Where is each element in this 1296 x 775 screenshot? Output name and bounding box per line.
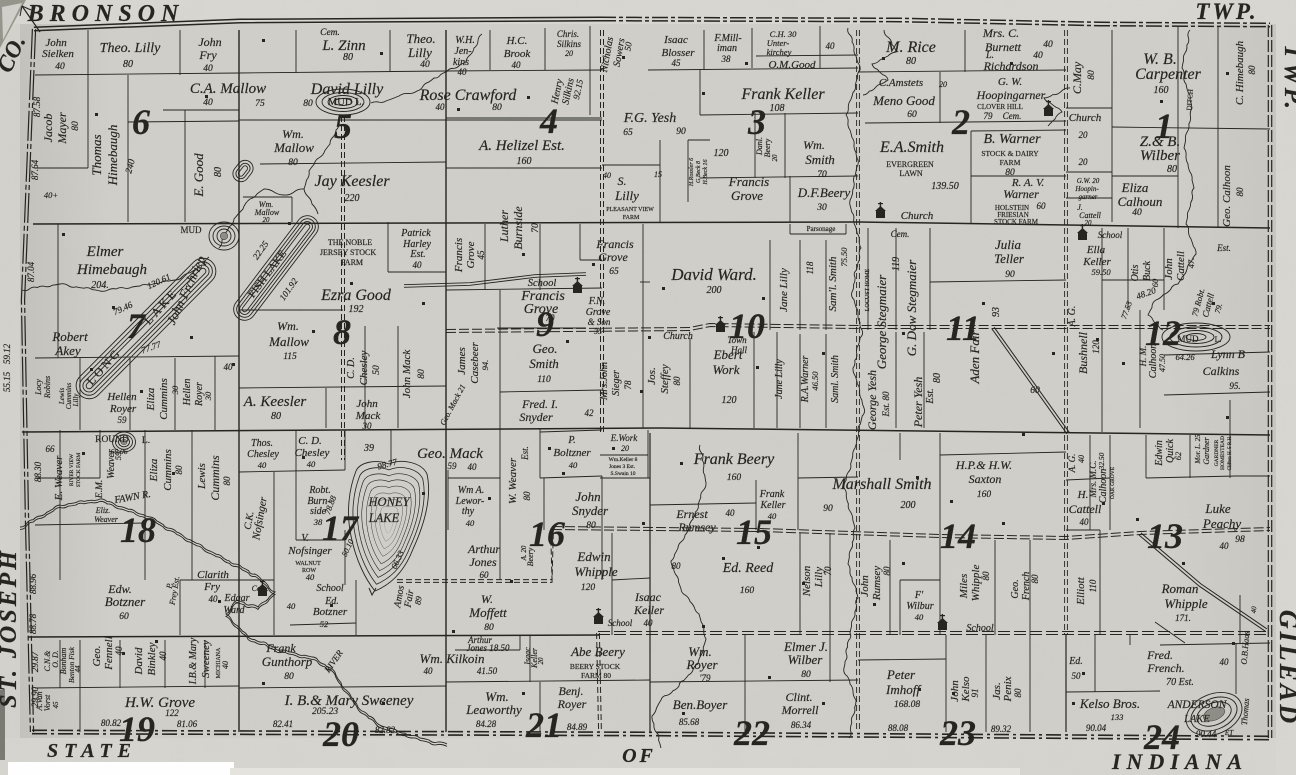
svg-text:Elmer: Elmer: [86, 244, 124, 260]
svg-text:Frank: Frank: [759, 489, 785, 500]
svg-text:W.H.: W.H.: [455, 35, 475, 46]
svg-text:40+: 40+: [44, 190, 58, 200]
svg-text:80.82: 80.82: [101, 718, 122, 728]
svg-text:Fry: Fry: [203, 581, 220, 593]
svg-text:Parsonage: Parsonage: [807, 225, 836, 233]
svg-text:A. Keesler: A. Keesler: [243, 394, 307, 410]
svg-text:40: 40: [466, 518, 475, 528]
svg-text:STOCK FARM: STOCK FARM: [994, 218, 1039, 226]
svg-text:38: 38: [313, 517, 323, 527]
svg-text:Whipple: Whipple: [574, 564, 618, 579]
svg-text:Lilly: Lilly: [614, 188, 639, 203]
svg-text:38: 38: [721, 54, 732, 64]
svg-text:Town: Town: [727, 335, 747, 345]
svg-text:30: 30: [203, 391, 213, 401]
svg-text:Mrs.John: Mrs.John: [599, 362, 610, 401]
svg-text:Julia: Julia: [995, 237, 1021, 252]
svg-text:Botzner: Botzner: [105, 594, 146, 609]
svg-text:80: 80: [271, 411, 281, 422]
svg-text:40: 40: [436, 102, 446, 112]
svg-text:G. W.: G. W.: [998, 76, 1022, 88]
svg-text:30: 30: [362, 421, 373, 431]
svg-text:John: John: [859, 575, 871, 597]
svg-text:40: 40: [413, 260, 423, 270]
svg-text:Ben.Boyer: Ben.Boyer: [673, 697, 728, 712]
svg-text:40: 40: [1132, 208, 1142, 218]
svg-text:V.: V.: [301, 533, 309, 544]
svg-text:7: 7: [127, 306, 147, 346]
svg-text:RIVER VIEW: RIVER VIEW: [69, 453, 75, 486]
svg-text:C.A. Mallow: C.A. Mallow: [190, 81, 266, 97]
svg-text:40: 40: [424, 666, 434, 676]
svg-text:Fry: Fry: [198, 48, 217, 62]
svg-text:F.N.: F.N.: [588, 296, 606, 307]
svg-text:8: 8: [333, 312, 351, 352]
svg-text:E.M.: E.M.: [95, 480, 105, 499]
svg-text:59.50: 59.50: [1091, 267, 1111, 277]
svg-text:80: 80: [932, 373, 943, 383]
svg-text:EVERGREEN: EVERGREEN: [886, 160, 934, 169]
svg-text:M. Rice: M. Rice: [885, 39, 936, 56]
svg-text:Cem.: Cem.: [891, 229, 910, 239]
svg-text:Eliz.: Eliz.: [95, 506, 110, 515]
svg-text:Benj.: Benj.: [559, 684, 584, 698]
svg-text:62: 62: [1173, 451, 1183, 460]
svg-text:Geo.: Geo.: [533, 341, 558, 356]
svg-text:Whipple: Whipple: [1164, 596, 1208, 611]
svg-text:Warner: Warner: [1003, 187, 1039, 201]
svg-text:Sweeney: Sweeney: [200, 640, 212, 678]
svg-text:40: 40: [1220, 541, 1230, 551]
svg-text:80: 80: [303, 99, 313, 109]
svg-text:FARM: FARM: [1000, 158, 1021, 167]
svg-text:Hellen: Hellen: [182, 379, 193, 407]
svg-text:Wilbur: Wilbur: [906, 601, 933, 612]
svg-text:2: 2: [951, 102, 970, 142]
svg-text:Chesley: Chesley: [247, 449, 279, 460]
svg-text:Clint.: Clint.: [785, 690, 812, 704]
svg-text:School: School: [316, 583, 343, 594]
svg-text:20: 20: [1085, 219, 1093, 227]
svg-text:W.: W.: [481, 592, 493, 606]
svg-text:82.82: 82.82: [375, 725, 396, 735]
svg-text:E.A.Smith: E.A.Smith: [879, 139, 944, 156]
svg-text:Geo.: Geo.: [1010, 579, 1021, 598]
svg-text:89.32: 89.32: [991, 724, 1012, 734]
svg-text:44: 44: [74, 665, 82, 673]
svg-text:Frank: Frank: [265, 641, 296, 655]
svg-text:40: 40: [224, 362, 234, 372]
svg-text:Nofsinger: Nofsinger: [287, 545, 332, 557]
svg-text:108: 108: [770, 103, 785, 114]
svg-text:Sam'l. Smith: Sam'l. Smith: [827, 256, 839, 311]
svg-text:80: 80: [672, 376, 682, 386]
svg-text:3: 3: [747, 102, 766, 142]
svg-text:Hellen: Hellen: [106, 391, 137, 403]
svg-text:HONEY: HONEY: [368, 495, 412, 509]
svg-text:STOCK FARM: STOCK FARM: [76, 453, 82, 488]
svg-text:200: 200: [707, 285, 722, 296]
svg-text:Imhoff: Imhoff: [885, 682, 922, 697]
svg-text:Snyder: Snyder: [572, 503, 609, 518]
svg-text:Miles: Miles: [958, 574, 970, 599]
svg-text:Church: Church: [901, 210, 934, 222]
svg-text:120: 120: [1091, 340, 1101, 354]
svg-text:118: 118: [805, 261, 815, 274]
svg-text:Thos.: Thos.: [251, 438, 273, 449]
svg-text:80: 80: [981, 571, 991, 581]
svg-text:Lynn B: Lynn B: [1210, 347, 1246, 361]
svg-text:ROUND: ROUND: [95, 435, 129, 445]
svg-text:Hoopingarner: Hoopingarner: [976, 88, 1046, 102]
svg-text:Patrick: Patrick: [400, 228, 431, 239]
svg-text:98: 98: [1235, 535, 1245, 545]
svg-text:40: 40: [420, 60, 430, 70]
svg-text:40: 40: [221, 661, 230, 669]
svg-text:66: 66: [46, 444, 56, 454]
svg-text:E.Work: E.Work: [610, 433, 638, 443]
svg-text:160: 160: [977, 490, 992, 500]
svg-text:40: 40: [1220, 657, 1230, 667]
svg-text:13: 13: [1147, 516, 1183, 556]
svg-text:60: 60: [1030, 386, 1040, 396]
svg-text:80: 80: [222, 476, 232, 486]
svg-text:Eliza: Eliza: [145, 387, 157, 411]
svg-text:Francis: Francis: [453, 238, 465, 273]
svg-text:80: 80: [71, 121, 81, 131]
svg-text:LAWN: LAWN: [899, 169, 923, 178]
svg-text:20: 20: [322, 714, 359, 754]
svg-text:55.15: 55.15: [2, 371, 12, 392]
svg-text:80: 80: [801, 670, 811, 680]
svg-text:19: 19: [119, 709, 155, 749]
svg-text:John: John: [1163, 258, 1175, 280]
svg-text:20: 20: [565, 49, 573, 58]
svg-text:40: 40: [55, 62, 65, 72]
svg-text:78: 78: [623, 380, 633, 390]
svg-text:80: 80: [906, 56, 916, 67]
svg-text:84.89: 84.89: [567, 722, 588, 732]
svg-text:Arthur: Arthur: [467, 542, 500, 556]
svg-text:80: 80: [1030, 574, 1040, 584]
svg-text:20: 20: [263, 216, 271, 224]
svg-text:Edgar: Edgar: [224, 593, 250, 604]
svg-text:Boltzner: Boltzner: [553, 447, 591, 459]
svg-text:15: 15: [736, 512, 772, 552]
svg-text:Jones 3 Est.: Jones 3 Est.: [609, 464, 636, 470]
svg-text:50: 50: [372, 365, 382, 375]
svg-text:80: 80: [882, 566, 892, 576]
svg-text:Francis: Francis: [728, 174, 769, 189]
svg-text:Benton Fisk: Benton Fisk: [67, 646, 76, 683]
svg-text:80: 80: [1235, 187, 1245, 197]
svg-text:David Ward.: David Ward.: [670, 265, 757, 284]
svg-text:Aden Fair: Aden Fair: [967, 330, 982, 385]
svg-text:TWP.: TWP.: [1195, 0, 1258, 24]
svg-text:93: 93: [991, 307, 1002, 317]
svg-text:Buck: Buck: [1142, 260, 1153, 281]
svg-text:Wm. Kilkoin: Wm. Kilkoin: [420, 651, 485, 666]
svg-text:Royer: Royer: [109, 403, 137, 415]
svg-text:Clarith: Clarith: [197, 569, 229, 581]
svg-text:Carpenter: Carpenter: [1135, 66, 1202, 83]
svg-text:BEERY STOCK: BEERY STOCK: [570, 662, 621, 671]
svg-text:School: School: [528, 278, 557, 289]
svg-text:Ward: Ward: [224, 605, 246, 616]
svg-text:Frank Keller: Frank Keller: [740, 86, 825, 103]
svg-text:59.12: 59.12: [2, 343, 12, 364]
svg-text:Ella: Ella: [1086, 244, 1106, 256]
svg-text:40: 40: [1080, 517, 1090, 527]
svg-text:20: 20: [1079, 157, 1089, 167]
svg-text:James: James: [456, 347, 468, 375]
svg-text:MUD: MUD: [180, 225, 202, 235]
svg-text:Calhoon: Calhoon: [1098, 469, 1109, 503]
svg-text:Cem.: Cem.: [1003, 111, 1022, 121]
svg-text:Richardson: Richardson: [983, 59, 1039, 73]
svg-text:Kelso Bros.: Kelso Bros.: [1079, 696, 1140, 711]
svg-text:Steffey: Steffey: [659, 364, 671, 393]
svg-text:160: 160: [740, 586, 755, 596]
svg-text:Binkley: Binkley: [146, 642, 158, 675]
svg-text:OF: OF: [622, 745, 656, 767]
svg-text:LAKE: LAKE: [1183, 714, 1210, 725]
svg-text:Abe Beery: Abe Beery: [570, 644, 625, 659]
svg-text:220: 220: [345, 193, 360, 204]
svg-text:Church: Church: [1069, 112, 1102, 124]
svg-text:E. Good: E. Good: [191, 153, 206, 198]
svg-text:Eliza: Eliza: [1121, 180, 1149, 195]
svg-text:Marshall Smith: Marshall Smith: [831, 476, 931, 493]
svg-text:60: 60: [480, 570, 490, 580]
svg-text:School: School: [966, 623, 993, 634]
svg-text:WALNUT: WALNUT: [295, 561, 321, 567]
svg-text:45: 45: [52, 701, 60, 709]
svg-text:40: 40: [726, 508, 736, 518]
svg-text:23: 23: [939, 713, 976, 753]
svg-text:Ernest: Ernest: [675, 507, 708, 521]
svg-text:Wilber: Wilber: [788, 652, 824, 667]
svg-text:Mayer: Mayer: [55, 112, 69, 145]
svg-text:22: 22: [733, 713, 770, 753]
svg-text:Gardner: Gardner: [1202, 436, 1211, 464]
svg-text:ET: ET: [1224, 729, 1234, 737]
svg-text:64.26: 64.26: [1175, 352, 1195, 362]
svg-text:BRONSON: BRONSON: [27, 1, 185, 27]
svg-text:60: 60: [119, 612, 129, 622]
svg-text:15: 15: [654, 170, 662, 179]
svg-text:Saxton: Saxton: [969, 472, 1002, 486]
svg-text:kirchey: kirchey: [767, 47, 792, 57]
svg-text:52: 52: [320, 619, 329, 629]
svg-text:Isaac: Isaac: [663, 34, 688, 46]
svg-text:45: 45: [672, 58, 682, 68]
svg-text:Church: Church: [663, 331, 693, 342]
svg-text:Saml. Smith: Saml. Smith: [830, 355, 841, 403]
svg-text:French.: French.: [1146, 661, 1184, 675]
svg-text:Francis: Francis: [595, 237, 634, 251]
svg-text:4: 4: [539, 101, 558, 141]
svg-text:Botzner: Botzner: [313, 606, 348, 618]
svg-text:Whipple: Whipple: [970, 565, 982, 602]
svg-text:Grove: Grove: [731, 188, 763, 203]
svg-text:88.08: 88.08: [888, 723, 909, 733]
svg-text:Wm.: Wm.: [282, 127, 304, 141]
svg-text:120: 120: [581, 583, 596, 593]
svg-text:L.: L.: [1215, 335, 1222, 344]
svg-text:80: 80: [484, 623, 494, 633]
svg-text:Grove: Grove: [598, 250, 628, 264]
svg-text:Mallow: Mallow: [268, 334, 309, 349]
svg-text:Ezra Good: Ezra Good: [320, 287, 392, 304]
svg-text:C. Himebaugh: C. Himebaugh: [1234, 40, 1246, 105]
svg-text:Cummins: Cummins: [158, 378, 170, 420]
svg-text:Cummins: Cummins: [208, 455, 222, 501]
svg-text:A. Helizel Est.: A. Helizel Est.: [478, 138, 565, 154]
svg-text:70: 70: [531, 223, 541, 233]
svg-text:Roman: Roman: [1161, 581, 1199, 596]
svg-text:46.50: 46.50: [810, 371, 820, 391]
svg-text:40: 40: [468, 462, 478, 472]
svg-text:Edwin: Edwin: [576, 549, 610, 564]
svg-text:C. D.: C. D.: [298, 435, 322, 447]
svg-text:90: 90: [823, 504, 833, 514]
svg-text:Jane Lilly: Jane Lilly: [778, 268, 790, 312]
svg-text:Meno Good: Meno Good: [872, 93, 935, 108]
svg-text:H.Rossler 6: H.Rossler 6: [689, 158, 695, 187]
svg-text:Morrell: Morrell: [781, 703, 820, 717]
svg-text:THE NOBLE: THE NOBLE: [328, 238, 372, 247]
svg-text:80: 80: [492, 103, 502, 113]
svg-text:Chesley: Chesley: [295, 447, 330, 459]
svg-text:Moffett: Moffett: [468, 605, 507, 620]
svg-text:30: 30: [170, 385, 180, 395]
svg-text:CLOVER HILL: CLOVER HILL: [977, 103, 1023, 111]
svg-text:Wm.Keller 8: Wm.Keller 8: [609, 457, 638, 463]
svg-text:80: 80: [343, 52, 353, 63]
svg-text:6: 6: [132, 102, 150, 142]
svg-text:C. D.: C. D.: [346, 357, 357, 378]
svg-text:Mrs. C.: Mrs. C.: [982, 26, 1019, 40]
svg-text:40: 40: [287, 601, 296, 611]
svg-text:80: 80: [1013, 688, 1023, 698]
svg-text:Lewis: Lewis: [196, 463, 208, 490]
svg-text:20: 20: [537, 657, 545, 665]
svg-text:Smith: Smith: [529, 356, 559, 371]
svg-text:Est.: Est.: [409, 249, 425, 260]
svg-text:42: 42: [585, 408, 595, 418]
svg-text:Geo. Mack: Geo. Mack: [417, 446, 483, 462]
svg-text:Edwin: Edwin: [1154, 440, 1165, 467]
svg-text:G. Dow Stegmaier: G. Dow Stegmaier: [904, 259, 919, 356]
svg-text:35: 35: [593, 327, 602, 336]
svg-text:Luke: Luke: [1204, 501, 1231, 516]
svg-text:MUD L.: MUD L.: [328, 97, 364, 108]
svg-text:20: 20: [771, 154, 779, 162]
svg-text:Rumsey: Rumsey: [677, 520, 716, 534]
svg-text:14: 14: [940, 516, 976, 556]
svg-text:David: David: [133, 647, 145, 675]
svg-text:PLEASANT VIEW: PLEASANT VIEW: [606, 207, 654, 213]
svg-text:90: 90: [1005, 270, 1015, 280]
svg-text:192: 192: [349, 304, 364, 315]
svg-text:65: 65: [609, 267, 619, 277]
svg-text:70: 70: [823, 566, 833, 576]
svg-text:Leaworthy: Leaworthy: [465, 702, 522, 717]
svg-text:50: 50: [1072, 671, 1082, 681]
svg-text:David Lilly: David Lilly: [310, 81, 384, 98]
svg-text:Cummins: Cummins: [162, 449, 174, 491]
svg-text:Geo. Calhoon: Geo. Calhoon: [1221, 165, 1233, 227]
svg-text:John: John: [356, 398, 378, 410]
svg-text:Est.: Est.: [520, 446, 530, 461]
svg-text:75: 75: [255, 99, 265, 109]
svg-text:HOMESTEAD: HOMESTEAD: [1220, 436, 1226, 470]
svg-text:91: 91: [970, 689, 980, 698]
svg-text:Teller: Teller: [994, 251, 1025, 266]
svg-text:40: 40: [644, 618, 654, 628]
svg-text:70 Est.: 70 Est.: [1166, 677, 1194, 688]
svg-text:Sieger: Sieger: [611, 370, 622, 396]
svg-text:Wm.: Wm.: [803, 138, 825, 152]
svg-text:40: 40: [114, 646, 124, 656]
svg-text:H.W. Grove: H.W. Grove: [124, 695, 195, 711]
svg-text:Ed.: Ed.: [1068, 656, 1083, 667]
svg-text:40: 40: [158, 651, 168, 661]
svg-text:Jones: Jones: [469, 555, 497, 569]
svg-text:168.08: 168.08: [894, 700, 920, 710]
svg-text:F.G. Yesh: F.G. Yesh: [623, 111, 677, 126]
svg-text:18: 18: [120, 510, 156, 550]
svg-text:John Mack: John Mack: [401, 349, 413, 399]
svg-text:Est.: Est.: [925, 388, 936, 404]
svg-text:95.: 95.: [1229, 381, 1240, 391]
svg-text:Cem.: Cem.: [252, 584, 269, 593]
svg-text:5: 5: [334, 106, 352, 146]
svg-text:160: 160: [1154, 85, 1169, 96]
svg-text:80: 80: [1087, 70, 1097, 80]
svg-text:119: 119: [891, 257, 902, 271]
svg-text:80: 80: [1167, 164, 1177, 175]
svg-text:Calhoun: Calhoun: [1118, 194, 1163, 209]
svg-text:FARM: FARM: [341, 258, 363, 267]
svg-text:A. G.: A. G.: [1067, 454, 1077, 474]
svg-text:G.W. 20: G.W. 20: [1077, 177, 1100, 185]
svg-text:40: 40: [209, 594, 219, 604]
svg-text:Chesley: Chesley: [358, 350, 370, 385]
svg-text:82.41: 82.41: [273, 719, 293, 729]
svg-text:40: 40: [603, 171, 611, 180]
svg-text:47.50: 47.50: [1158, 354, 1167, 372]
svg-text:John: John: [198, 35, 221, 49]
svg-text:D.F.Beery: D.F.Beery: [797, 185, 851, 200]
svg-text:Brook: Brook: [504, 48, 532, 60]
svg-text:66.06: 66.06: [111, 447, 128, 456]
svg-text:Jacob: Jacob: [41, 114, 55, 143]
svg-text:I. B.& Mary Sweeney: I. B.& Mary Sweeney: [284, 693, 414, 709]
svg-text:39: 39: [363, 443, 374, 454]
svg-text:Cattell: Cattell: [1069, 502, 1102, 516]
svg-text:Beery: Beery: [526, 547, 535, 566]
svg-text:88.78: 88.78: [28, 613, 38, 634]
svg-text:87.04: 87.04: [26, 261, 36, 282]
svg-text:86.34: 86.34: [791, 720, 812, 730]
svg-text:Ebert: Ebert: [713, 347, 743, 362]
svg-text:Robins: Robins: [43, 376, 52, 399]
svg-text:139.50: 139.50: [931, 181, 959, 192]
svg-text:Theo.: Theo.: [406, 31, 435, 46]
svg-text:Elliott: Elliott: [1075, 576, 1087, 605]
